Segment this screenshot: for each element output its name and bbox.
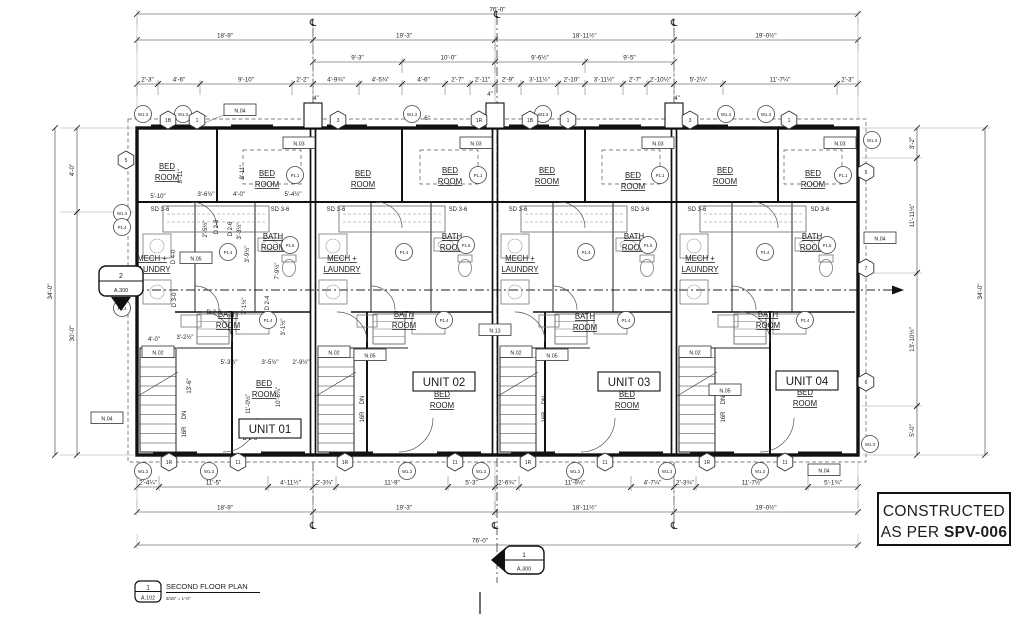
- wall-tag-label: P1.4: [264, 318, 273, 323]
- dimension-label: 2'-4¼": [139, 480, 157, 487]
- dimension-label: 3'-11½": [529, 76, 550, 84]
- generated-plan-geometry: 76'-0"18'-9"19'-3"18'-11½"19'-0½"9'-3"10…: [47, 7, 990, 615]
- bedroom-label: ROOM: [252, 390, 276, 399]
- dimension-label: 2'-10": [563, 77, 579, 84]
- note-tag-label: N.05: [364, 354, 375, 360]
- centerline-symbol: ℄: [309, 18, 317, 29]
- window-segment: [619, 452, 663, 457]
- dimension-label: 2'-11": [475, 77, 491, 84]
- bedroom-label: ROOM: [430, 401, 454, 410]
- dimension-label: 2'-9": [502, 77, 515, 84]
- annotation-text: SD 3-6: [271, 207, 290, 213]
- grid-tag-label: 1R: [476, 118, 483, 124]
- dimension-label: 2'-3¾": [316, 480, 334, 487]
- stamp-line2-prefix: AS PER: [881, 524, 944, 541]
- mech-laundry-label: MECH +: [327, 254, 357, 263]
- dryer-fixture: [319, 280, 347, 304]
- annotation-text: SD 3-6: [811, 207, 830, 213]
- annotation-text: 16R: [182, 426, 188, 438]
- dryer-fixture: [501, 280, 529, 304]
- wall-tag-label: P1.4: [761, 250, 770, 255]
- grid-tag-label: 11: [452, 460, 457, 466]
- note-tag-label: N.04: [101, 417, 112, 423]
- dimension-label: 2'-3": [141, 77, 154, 84]
- drawing-sheet: 76'-0"18'-9"19'-3"18'-11½"19'-0½"9'-3"10…: [0, 0, 1023, 617]
- note-tag-label: N.13: [489, 329, 500, 335]
- wall-tag-label: W1.3: [865, 442, 876, 447]
- annotation-text: 4'-0": [148, 337, 160, 343]
- wall-tag-label: W1.3: [662, 469, 673, 474]
- bedroom-label: ROOM: [438, 177, 462, 186]
- wall-tag-label: W1.3: [402, 469, 413, 474]
- section-number: 1: [522, 552, 526, 559]
- dimension-label: 34'-0": [977, 283, 984, 299]
- annotation-text: SD 3-6: [151, 207, 170, 213]
- annotation-text: 4": [313, 96, 318, 102]
- wall-tag-label: P1.4: [224, 250, 233, 255]
- wall-tag-label: P1.1: [656, 173, 665, 178]
- bedroom-label: BED: [159, 162, 175, 171]
- bathroom-label: BATH: [575, 312, 595, 321]
- mech-laundry-label: MECH +: [505, 254, 535, 263]
- wall-tag-label: P1.1: [291, 173, 300, 178]
- dimension-label: 5'-1¾": [824, 480, 842, 487]
- dimension-label: 11'-9": [384, 480, 400, 487]
- note-tag-label: N.02: [152, 351, 163, 357]
- toilet-tank: [640, 255, 654, 262]
- annotation-text: 7'-9½": [274, 263, 281, 280]
- dimension-label: 3'-11½": [594, 76, 615, 84]
- annotation-text: 3'-1½": [280, 319, 287, 336]
- annotation-text: SD 3-6: [449, 207, 468, 213]
- wall-tag-label: W1.3: [178, 112, 189, 117]
- bathroom-label: ROOM: [756, 321, 780, 330]
- door-swing-arc: [581, 418, 615, 452]
- dimension-label: 2'-7": [451, 77, 464, 84]
- note-tag-label: N.05: [190, 257, 201, 263]
- dimension-label: 9'-10": [238, 77, 254, 84]
- dimension-label: 19'-0½": [755, 32, 776, 40]
- note-tag-label: N.04: [874, 237, 885, 243]
- grid-tag-label: 1: [196, 118, 199, 124]
- dimension-label: 11'-7¼": [770, 77, 791, 84]
- bedroom-label: BED: [259, 169, 275, 178]
- dimension-label: 2'-3": [841, 77, 854, 84]
- dimension-label: 4'-11½": [280, 479, 301, 487]
- dimension-label: 2'-3¾": [676, 480, 694, 487]
- annotation-text: 4": [674, 96, 679, 102]
- annotation-text: 3'-6½": [198, 191, 215, 198]
- wall-tag-label: W1.3: [761, 112, 772, 117]
- annotation-text: 6": [424, 116, 429, 122]
- dimension-label: 30'-0": [69, 325, 76, 341]
- dimension-label: 34'-0": [47, 283, 54, 299]
- bedroom-label: ROOM: [535, 177, 559, 186]
- annotation-text: SD 3-6: [509, 207, 528, 213]
- dimension-label: 4'-0": [69, 164, 76, 177]
- stair-break-line: [138, 372, 178, 396]
- bedroom-label: ROOM: [621, 182, 645, 191]
- note-tag-label: N.02: [328, 351, 339, 357]
- annotation-text: SD 3-6: [631, 207, 650, 213]
- note-tag-label: N.03: [293, 142, 304, 148]
- mech-laundry-label: LAUNDRY: [681, 265, 719, 274]
- annotation-text: 5'-3½": [221, 359, 238, 366]
- dimension-label: 4'-6": [173, 77, 186, 84]
- wall-tag-label: W1.3: [721, 112, 732, 117]
- bedroom-label: BED: [355, 169, 371, 178]
- bathroom-label: BATH: [263, 232, 283, 241]
- dimension-label: 3'-2": [909, 137, 916, 150]
- wall-tag-label: P1.4: [118, 225, 127, 230]
- annotation-text: 3'-3½": [236, 223, 243, 240]
- bedroom-label: BED: [442, 166, 458, 175]
- dryer-fixture: [680, 280, 708, 304]
- grid-tag-label: 1: [788, 118, 791, 124]
- dimension-label: 2'-10½": [650, 76, 671, 84]
- wall-tag-label: W1.3: [138, 112, 149, 117]
- bathroom-label: BATH: [394, 310, 414, 319]
- dimension-label: 10'-0": [440, 55, 456, 62]
- grid-tag-label: 3: [689, 118, 692, 124]
- bedroom-label: ROOM: [615, 401, 639, 410]
- wall-projection: [665, 103, 683, 128]
- window-segment: [416, 125, 458, 130]
- grid-tag-label: 3: [337, 118, 340, 124]
- dimension-label: 18'-11½": [572, 504, 596, 512]
- bathroom-label: BATH: [758, 310, 778, 319]
- grid-tag-label: 1: [567, 118, 570, 124]
- stamp-line1: CONSTRUCTED: [883, 503, 1005, 520]
- stamp-line2: AS PER SPV-006: [881, 524, 1008, 541]
- sink-fixture: [718, 315, 738, 327]
- wall-tag-label: W1.3: [204, 469, 215, 474]
- wall-tag-label: P1.1: [474, 173, 483, 178]
- bedroom-label: ROOM: [713, 177, 737, 186]
- drawing-number: 1: [146, 585, 150, 592]
- annotation-text: 3'-9½": [244, 246, 251, 263]
- wall-tag-label: P1.1: [839, 173, 848, 178]
- note-tag-label: N.03: [834, 142, 845, 148]
- mech-laundry-label: MECH +: [137, 254, 167, 263]
- centerline-symbol: ℄: [670, 521, 678, 532]
- dimension-label: 4'-5¾": [372, 77, 390, 84]
- stair-outline: [318, 348, 354, 452]
- grid-tag-label: 11: [235, 460, 240, 466]
- unit-label: UNIT 04: [786, 376, 829, 388]
- bedroom-label: ROOM: [351, 180, 375, 189]
- note-tag-label: N.05: [719, 389, 730, 395]
- note-tag-label: N.04: [818, 469, 829, 475]
- wall-tag-label: W1.3: [755, 469, 766, 474]
- wall-projection: [486, 103, 504, 128]
- annotation-text: 4": [487, 92, 492, 98]
- window-segment: [261, 452, 305, 457]
- dimension-label: 9'-3": [351, 55, 364, 62]
- wall-projection: [304, 103, 322, 128]
- dimension-label: 9'-5": [623, 55, 636, 62]
- bathroom-label: ROOM: [216, 321, 240, 330]
- mech-laundry-label: MECH +: [685, 254, 715, 263]
- bedroom-label: ROOM: [793, 399, 817, 408]
- wall-tag-label: P1.4: [400, 250, 409, 255]
- dimension-label: 2'-2": [296, 77, 309, 84]
- annotation-text: 3'-5½": [262, 359, 279, 366]
- bedroom-label: ROOM: [155, 173, 179, 182]
- annotation-text: 8'-11": [240, 165, 246, 180]
- dimension-label: 19'-0½": [755, 504, 776, 512]
- annotation-text: SD 3-6: [327, 207, 346, 213]
- grid-tag-label: 1R: [342, 460, 349, 466]
- bedroom-label: ROOM: [801, 180, 825, 189]
- dimension-label: 4'-7¼": [644, 480, 662, 487]
- constructed-stamp: CONSTRUCTED AS PER SPV-006: [878, 493, 1010, 545]
- washer-drum: [687, 239, 701, 253]
- annotation-text: DN: [182, 411, 188, 420]
- dimension-label: 18'-9": [217, 33, 233, 40]
- annotation-text: DN: [542, 396, 548, 405]
- section-marker-bottom: 1 A.300: [491, 546, 544, 574]
- grid-tag-label: 1B: [527, 118, 534, 124]
- bathroom-label: BATH: [802, 232, 822, 241]
- annotation-text: 5'-10": [150, 194, 165, 200]
- washer-drum: [150, 239, 164, 253]
- note-tag-label: N.05: [546, 354, 557, 360]
- toilet-tank: [458, 255, 472, 262]
- stair-outline: [500, 348, 536, 452]
- dryer-drum: [508, 285, 522, 299]
- grid-tag-label: 1B: [165, 118, 172, 124]
- sheet-number: A.102: [141, 596, 155, 602]
- stamp-spv-ref: SPV-006: [944, 524, 1007, 541]
- sink-fixture: [181, 315, 201, 327]
- centerline-symbol: ℄: [491, 521, 499, 532]
- annotation-text: 2'-5½": [202, 221, 209, 238]
- annotation-text: 7'-1½": [241, 298, 248, 315]
- section-number: 2: [119, 273, 123, 280]
- drawing-title-block: 1 A.102 SECOND FLOOR PLAN 3/16" = 1'-0": [135, 581, 260, 602]
- annotation-text: DN: [721, 396, 727, 405]
- annotation-text: 10'-6¼": [276, 387, 282, 407]
- window-segment: [798, 452, 842, 457]
- bedroom-label: BED: [539, 166, 555, 175]
- section-sheet: A.300: [517, 567, 531, 573]
- grid-tag-label: 11: [782, 460, 787, 466]
- sink-fixture: [539, 315, 559, 327]
- grid-tag-label: 6: [865, 380, 868, 386]
- unit-label: UNIT 03: [608, 377, 651, 389]
- bedroom-label: BED: [256, 379, 272, 388]
- dimension-label: 13'-10½": [908, 327, 916, 352]
- wall-tag-label: W1.3: [138, 469, 149, 474]
- dimension-label: 11'-11½": [908, 204, 916, 228]
- annotation-text: 13'-6": [187, 378, 193, 393]
- annotation-text: 4'-0": [233, 192, 245, 198]
- centerline-symbol: ℄: [670, 18, 678, 29]
- dimension-label: 9'-6½": [531, 54, 549, 62]
- window-segment: [792, 125, 834, 130]
- note-tag-label: N.03: [652, 142, 663, 148]
- stair-outline: [140, 348, 176, 452]
- dimension-label: 11'-5": [206, 480, 222, 487]
- toilet-tank: [819, 255, 833, 262]
- wall-tag-label: W1.3: [570, 469, 581, 474]
- bathroom-label: BATH: [218, 310, 238, 319]
- note-tag-label: N.03: [470, 142, 481, 148]
- wall-tag-label: W1.3: [117, 211, 128, 216]
- grid-tag-label: 1R: [166, 460, 173, 466]
- unit-label: UNIT 02: [423, 377, 466, 389]
- dryer-drum: [326, 285, 340, 299]
- wall-tag-label: W1.3: [538, 112, 549, 117]
- dimension-label: 4'-9¾": [327, 77, 345, 84]
- toilet-tank: [282, 255, 296, 262]
- floor-plan-drawing: 76'-0"18'-9"19'-3"18'-11½"19'-0½"9'-3"10…: [0, 0, 1023, 617]
- annotation-text: D 4-0: [171, 249, 177, 264]
- dryer-fixture: [143, 280, 171, 304]
- grid-tag-label: 5: [125, 158, 128, 164]
- note-tag-label: N.04: [234, 109, 245, 115]
- annotation-text: D 2-8: [214, 219, 220, 234]
- annotation-text: D 3-0: [172, 292, 178, 307]
- note-tag-label: N.02: [689, 351, 700, 357]
- wall-tag-label: W1.3: [407, 112, 418, 117]
- closet-millwork: [521, 206, 627, 232]
- annotation-text: DN: [360, 396, 366, 405]
- annotation-text: 16R: [542, 411, 548, 423]
- bedroom-label: BED: [805, 169, 821, 178]
- dimension-label: 19'-3": [396, 33, 412, 40]
- wall-tag-label: P1.4: [582, 250, 591, 255]
- annotation-text: D 2-4: [265, 295, 271, 310]
- dimension-label: 18'-11½": [572, 32, 596, 40]
- wall-tag-label: P1.4: [622, 318, 631, 323]
- dimension-label: 76'-0": [472, 538, 488, 545]
- wall-tag-label: P1.4: [440, 318, 449, 323]
- grid-tag-label: 5: [865, 170, 868, 176]
- dimension-label: 4'-6": [417, 77, 430, 84]
- dimension-label: 5'-3": [465, 480, 478, 487]
- bathroom-label: ROOM: [392, 321, 416, 330]
- wall-tag-label: P1.5: [286, 243, 295, 248]
- stair-break-line: [316, 372, 356, 396]
- centerline-symbol: ℄: [309, 521, 317, 532]
- dimension-label: 19'-3": [396, 505, 412, 512]
- bathroom-label: ROOM: [573, 323, 597, 332]
- stair-outline: [679, 348, 715, 452]
- annotation-text: 16R: [721, 411, 727, 423]
- annotation-text: SD 3-6: [688, 207, 707, 213]
- note-tag-label: N.02: [510, 351, 521, 357]
- annotation-text: 3'-2½": [177, 334, 194, 341]
- centerline-symbol: ℄: [493, 10, 501, 21]
- dimension-label: 2'-7": [629, 77, 642, 84]
- dashed-closet-outline: [784, 150, 842, 184]
- annotation-text: 5'-4½": [285, 191, 302, 198]
- mech-laundry-label: LAUNDRY: [501, 265, 539, 274]
- dimension-label: 5'-2¼": [690, 77, 708, 84]
- dimension-label: 2'-6¾": [498, 480, 516, 487]
- annotation-text: D 2-6: [228, 221, 234, 236]
- bedroom-label: BED: [625, 171, 641, 180]
- wall-tag-label: W1.3: [476, 469, 487, 474]
- window-segment: [599, 125, 641, 130]
- section-arrow-left-icon: [491, 548, 505, 572]
- window-segment: [231, 125, 273, 130]
- section-cut-arrow-icon: [892, 286, 904, 295]
- drawing-title: SECOND FLOOR PLAN: [166, 582, 248, 591]
- closet-millwork: [700, 206, 806, 232]
- wall-tag-label: W1.3: [867, 138, 878, 143]
- mech-laundry-label: LAUNDRY: [323, 265, 361, 274]
- dryer-drum: [150, 285, 164, 299]
- washer-drum: [326, 239, 340, 253]
- annotation-text: 2'-9½": [293, 359, 310, 366]
- drawing-scale: 3/16" = 1'-0": [166, 596, 191, 601]
- bedroom-label: ROOM: [255, 180, 279, 189]
- dimension-label: 5'-0": [909, 424, 916, 437]
- grid-tag-label: 11: [602, 460, 607, 466]
- wall-tag-label: P1.4: [801, 318, 810, 323]
- washer-drum: [508, 239, 522, 253]
- stair-break-line: [498, 372, 538, 396]
- wall-tag-label: P1.5: [644, 243, 653, 248]
- dryer-drum: [687, 285, 701, 299]
- wall-tag-label: P1.5: [823, 243, 832, 248]
- door-swing-arc: [399, 418, 433, 452]
- grid-tag-label: 1R: [525, 460, 532, 466]
- wall-tag-label: P1.5: [462, 243, 471, 248]
- closet-millwork: [339, 206, 445, 232]
- bedroom-label: BED: [717, 166, 733, 175]
- unit-label: UNIT 01: [249, 424, 292, 436]
- section-sheet: A.300: [114, 288, 128, 294]
- annotation-text: 16R: [360, 411, 366, 423]
- dimension-label: 18'-9": [217, 505, 233, 512]
- grid-tag-label: 7: [865, 266, 868, 272]
- door-swing-arc: [760, 418, 794, 452]
- grid-tag-label: 1R: [704, 460, 711, 466]
